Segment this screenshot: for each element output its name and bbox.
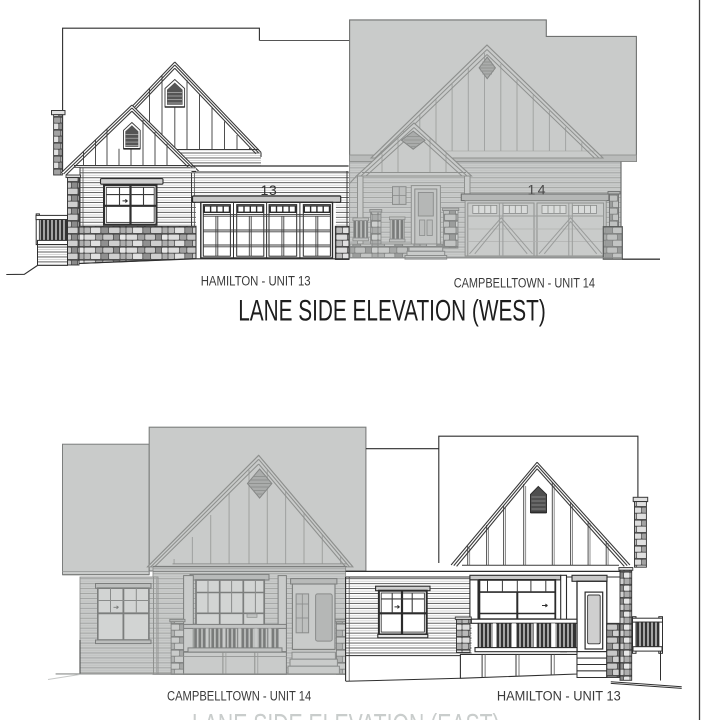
svg-text:CAMPBELLTOWN - UNIT 14: CAMPBELLTOWN - UNIT 14 (167, 688, 312, 703)
svg-text:CAMPBELLTOWN - UNIT 14: CAMPBELLTOWN - UNIT 14 (454, 276, 596, 291)
svg-text:HAMILTON - UNIT 13: HAMILTON - UNIT 13 (201, 273, 311, 288)
svg-text:LANE SIDE ELEVATION (WEST): LANE SIDE ELEVATION (WEST) (238, 295, 546, 328)
svg-text:14: 14 (528, 183, 548, 199)
svg-text:LANE SIDE ELEVATION (EAST): LANE SIDE ELEVATION (EAST) (192, 709, 500, 720)
svg-text:HAMILTON - UNIT 13: HAMILTON - UNIT 13 (497, 688, 621, 703)
